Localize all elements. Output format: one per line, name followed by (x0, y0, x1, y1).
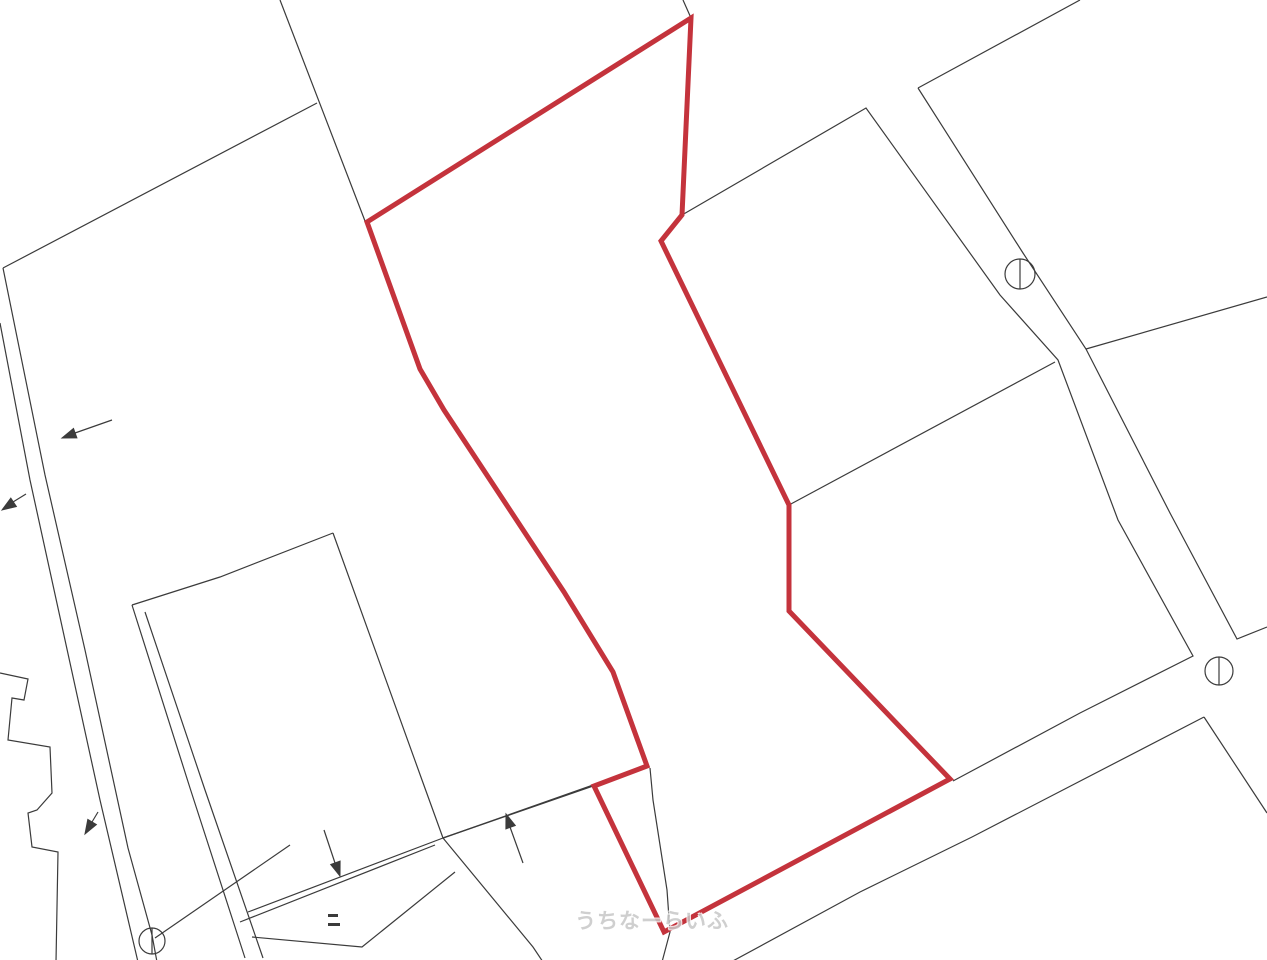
boundary-line (918, 88, 1267, 639)
boundary-line (280, 0, 365, 221)
boundary-line (918, 0, 1080, 88)
boundary-line (731, 717, 1204, 960)
direction-arrow-tail (75, 420, 112, 433)
boundary-line (132, 605, 245, 958)
boundary-line (683, 0, 691, 18)
tick-mark (328, 914, 338, 917)
boundary-line (3, 268, 157, 960)
boundary-line (155, 845, 290, 938)
boundary-line (132, 533, 333, 605)
boundary-line (0, 323, 138, 960)
boundary-line (252, 872, 455, 947)
direction-arrow-icon (62, 429, 77, 439)
direction-arrow-icon (85, 819, 96, 834)
cadastral-map: うちなーらいふ (0, 0, 1267, 960)
boundary-line (3, 103, 317, 268)
direction-arrow-icon (2, 498, 16, 510)
boundary-line (248, 838, 443, 912)
selected-parcel-outline (367, 18, 950, 932)
tick-mark (328, 923, 340, 926)
boundary-line (240, 845, 435, 922)
direction-arrow-tail (13, 494, 26, 502)
boundary-line (0, 673, 58, 960)
direction-arrow-icon (506, 814, 515, 829)
cadastral-map-canvas (0, 0, 1267, 960)
boundary-line (1086, 297, 1267, 349)
direction-arrow-tail (92, 812, 98, 822)
boundary-line (789, 362, 1055, 505)
direction-arrow-tail (510, 827, 523, 863)
direction-arrow-icon (331, 861, 340, 876)
boundary-line (333, 533, 443, 838)
boundary-line (443, 838, 543, 960)
direction-arrow-tail (324, 830, 335, 863)
boundary-line (145, 612, 263, 958)
boundary-line (1204, 717, 1267, 813)
